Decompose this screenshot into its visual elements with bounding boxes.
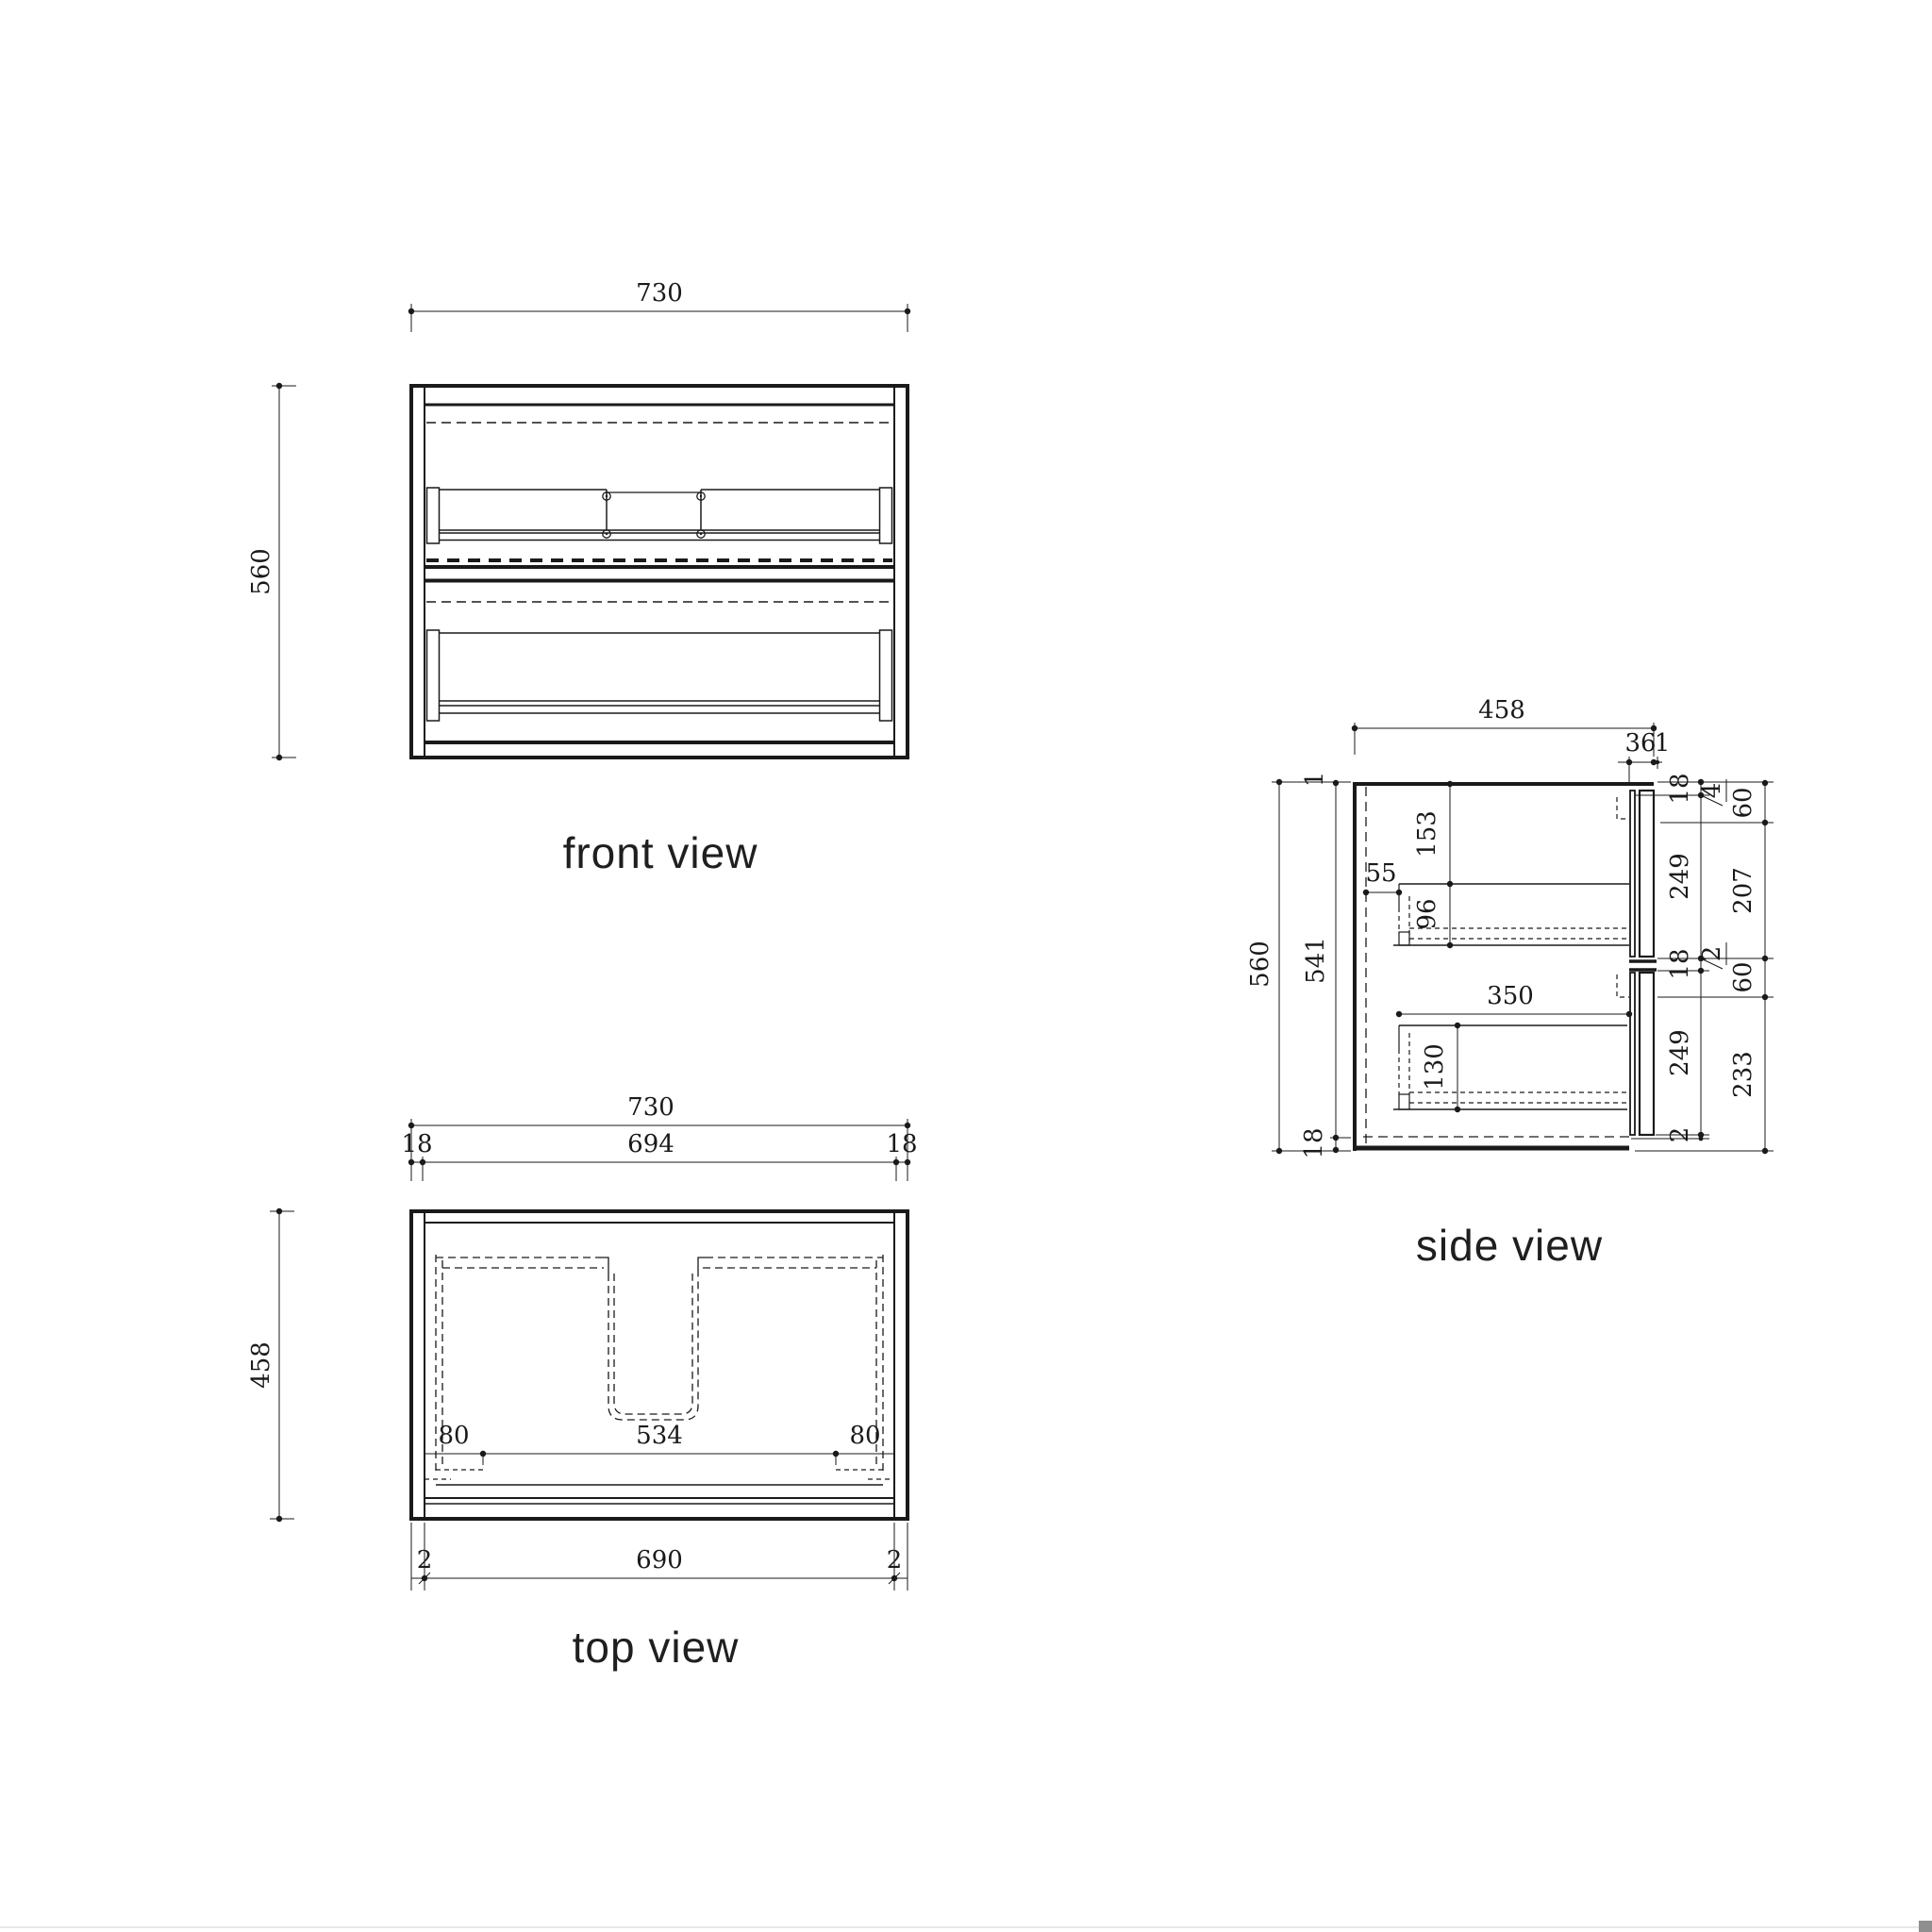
side-rC1-label: 60: [1729, 787, 1757, 818]
side-flag4-label: 4: [1698, 783, 1726, 799]
top-offset-left-label: 80: [438, 1422, 469, 1450]
side-dim-top: 458 36 1: [1352, 696, 1670, 785]
front-view: 730 560 front view: [247, 279, 910, 877]
top-side-right-label: 18: [886, 1130, 917, 1158]
top-offset-right-label: 80: [849, 1422, 880, 1450]
top-depth-label: 458: [247, 1341, 275, 1389]
side-rC2-label: 207: [1729, 867, 1757, 914]
side-view-title: side view: [1416, 1221, 1603, 1270]
top-dim-basin: 80 534 80: [425, 1422, 894, 1465]
top-side-left-label: 18: [401, 1130, 432, 1158]
side-dim-interior: 153 96 55 350 130: [1363, 781, 1632, 1112]
side-d1-back-label: 55: [1365, 859, 1396, 888]
top-dim-bottom: 2 690 2: [411, 1523, 908, 1591]
page-corner-box: [1919, 1921, 1932, 1932]
top-view: 80 534 80 730 18 694 18: [247, 1093, 918, 1672]
side-front-thickness-label: 36: [1624, 729, 1656, 758]
sink-basin-outline: [601, 1257, 706, 1420]
cad-drawing: 730 560 front view: [0, 0, 1932, 1932]
front-width-label: 730: [636, 279, 683, 308]
front-view-title: front view: [563, 828, 758, 877]
side-d2-length-label: 350: [1487, 982, 1534, 1010]
side-rA2-label: 249: [1666, 853, 1694, 900]
side-rC4-label: 233: [1729, 1051, 1757, 1098]
top-width-label: 730: [627, 1093, 675, 1122]
front-lower-drawer: [427, 630, 892, 721]
side-inner-height-label: 541: [1302, 937, 1330, 984]
top-edge-right-label: 2: [887, 1546, 903, 1574]
top-basin-label: 534: [636, 1422, 683, 1450]
side-front-gap-label: 1: [1655, 729, 1671, 758]
side-rA3-label: 18: [1666, 948, 1694, 979]
drawing-sheet: 730 560 front view: [0, 0, 1932, 1932]
side-d2-height-label: 130: [1421, 1043, 1449, 1091]
top-bottom-width-label: 690: [636, 1546, 683, 1574]
side-rA1-label: 18: [1666, 773, 1694, 804]
screw-icon: [603, 492, 705, 538]
side-d1-top-label: 153: [1413, 810, 1441, 858]
side-height-label: 560: [1246, 941, 1274, 988]
front-upper-drawer: [427, 488, 892, 543]
side-dim-left: 560 1 541 18: [1246, 772, 1351, 1159]
side-bottom-panel-label: 18: [1300, 1127, 1328, 1158]
side-flag2-label: 2: [1698, 946, 1726, 962]
side-top-gap-label: 1: [1301, 772, 1329, 788]
top-view-title: top view: [573, 1623, 740, 1672]
side-drawer-fronts: [1629, 791, 1657, 1135]
front-carcass-outline: [411, 386, 908, 758]
front-dim-height: 560: [247, 383, 296, 760]
top-dim-depth: 458: [247, 1208, 294, 1522]
side-view: 153 96 55 350 130 560 1 541 18: [1246, 696, 1774, 1270]
top-dim-width: 730 18 694 18: [401, 1093, 917, 1181]
top-inner-width-label: 694: [627, 1130, 675, 1158]
top-edge-left-label: 2: [417, 1546, 433, 1574]
front-dim-width: 730: [408, 279, 910, 332]
side-dim-right-outer: 60 207 60 233: [1635, 780, 1774, 1154]
side-rC3-label: 60: [1729, 961, 1757, 992]
side-rA5-label: 2: [1666, 1127, 1694, 1143]
side-rA4-label: 249: [1666, 1029, 1694, 1076]
side-depth-label: 458: [1478, 696, 1525, 724]
front-height-label: 560: [247, 548, 275, 595]
side-d1-height-label: 96: [1413, 898, 1441, 929]
